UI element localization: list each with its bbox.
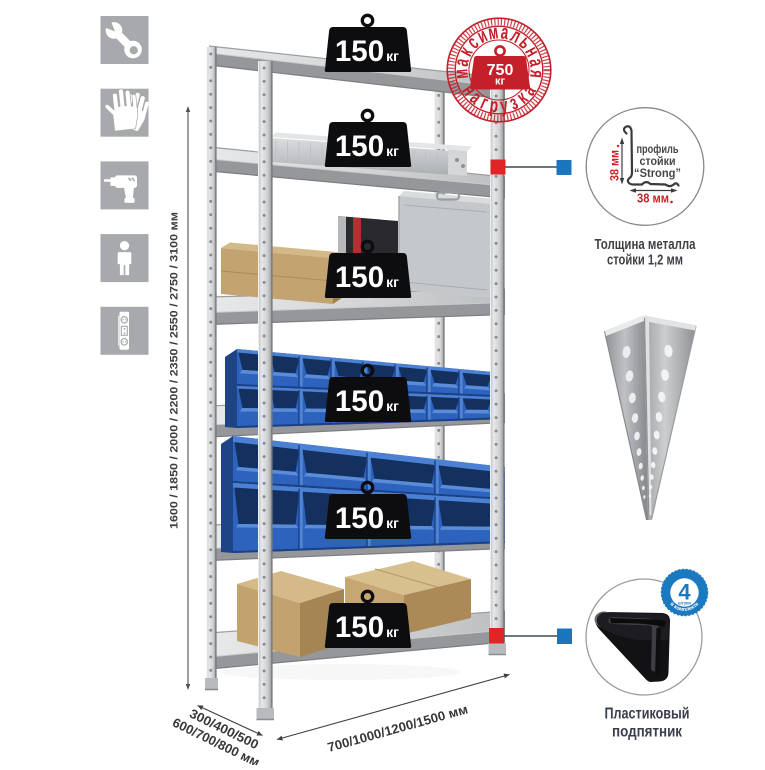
svg-text:Толщина металла: Толщина металла — [595, 236, 697, 253]
svg-text:150: 150 — [335, 130, 384, 163]
svg-text:кг: кг — [386, 398, 399, 414]
svg-text:кг: кг — [386, 624, 399, 640]
svg-text:кг: кг — [386, 515, 399, 531]
svg-text:подпятник: подпятник — [612, 724, 683, 741]
svg-text:кг: кг — [386, 274, 399, 290]
svg-text:кг: кг — [495, 76, 506, 88]
svg-text:150: 150 — [335, 502, 384, 535]
svg-text:150: 150 — [335, 385, 384, 418]
svg-text:кг: кг — [386, 143, 399, 159]
svg-text:38 мм: 38 мм — [608, 150, 622, 181]
svg-text:150: 150 — [335, 35, 384, 68]
svg-text:кг: кг — [386, 48, 399, 64]
svg-text:Пластиковый: Пластиковый — [605, 706, 690, 723]
svg-text:150: 150 — [335, 261, 384, 294]
svg-text:38 мм: 38 мм — [637, 192, 669, 206]
svg-text:150: 150 — [335, 611, 384, 644]
svg-text:штуки: штуки — [678, 600, 691, 605]
svg-text:1600 / 1850 / 2000 / 2200 / 23: 1600 / 1850 / 2000 / 2200 / 2350 / 2550 … — [169, 212, 181, 529]
svg-text:“Strong”: “Strong” — [634, 166, 681, 180]
svg-text:стойки 1,2 мм: стойки 1,2 мм — [607, 252, 683, 269]
